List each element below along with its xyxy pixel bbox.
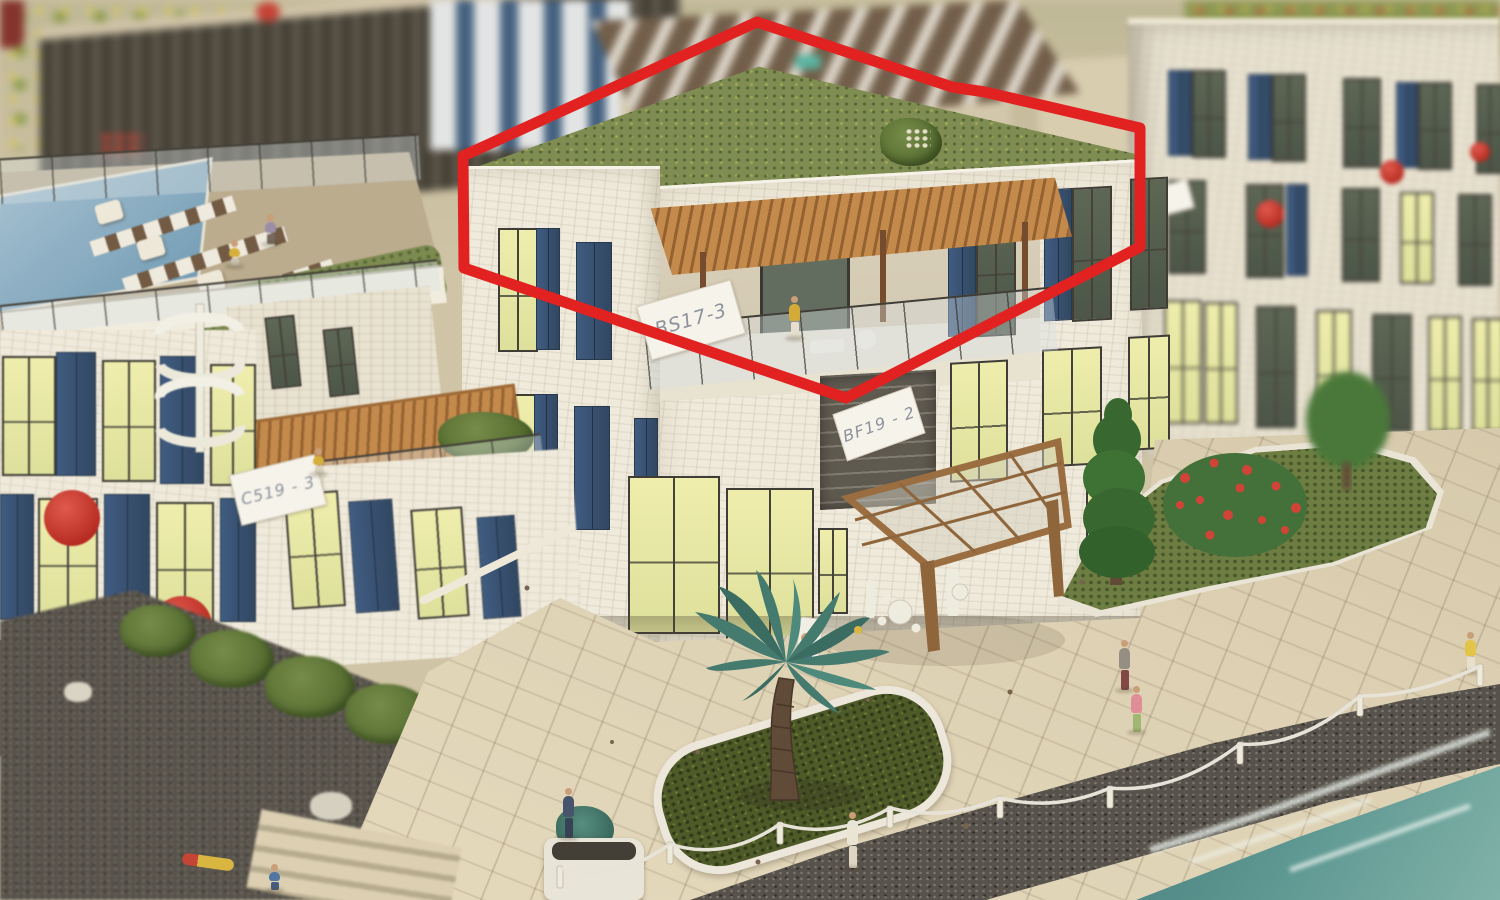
red-circle-decor <box>44 490 100 546</box>
unit-label-text: C519 - 3 <box>239 472 317 509</box>
window <box>102 360 156 482</box>
white-rock <box>64 682 92 702</box>
pedestrian-figure <box>1130 686 1143 732</box>
window <box>818 528 848 614</box>
spiral-staircase <box>152 300 252 460</box>
window <box>1042 346 1102 467</box>
garden-shrub <box>190 630 274 688</box>
window <box>1072 186 1112 322</box>
window <box>1128 334 1170 450</box>
pedestrian-figure <box>268 864 281 890</box>
garden-shrub <box>120 605 196 657</box>
pedestrian-figure <box>562 788 575 838</box>
pedestrian-figure <box>1118 640 1131 690</box>
window <box>1130 177 1168 311</box>
garden-shrub <box>265 656 355 718</box>
pedestrian-figure <box>1464 632 1477 672</box>
roof-white-flowers <box>905 128 931 148</box>
model-photo: BF19 - 2 BS17-3 <box>0 0 1500 900</box>
unit-label-text: BS17-3 <box>652 299 729 341</box>
pedestrian-figure <box>788 296 801 338</box>
white-rock <box>310 792 352 820</box>
planter-opening <box>552 842 636 860</box>
pedestrian-figure <box>312 448 325 474</box>
window <box>2 356 56 476</box>
shutter <box>56 352 96 476</box>
pedestrian-figure <box>228 240 241 266</box>
unit-label-text: BF19 - 2 <box>841 402 918 446</box>
pedestrian-figure <box>846 812 859 868</box>
pedestrian-figure <box>264 214 277 244</box>
window <box>950 360 1008 483</box>
